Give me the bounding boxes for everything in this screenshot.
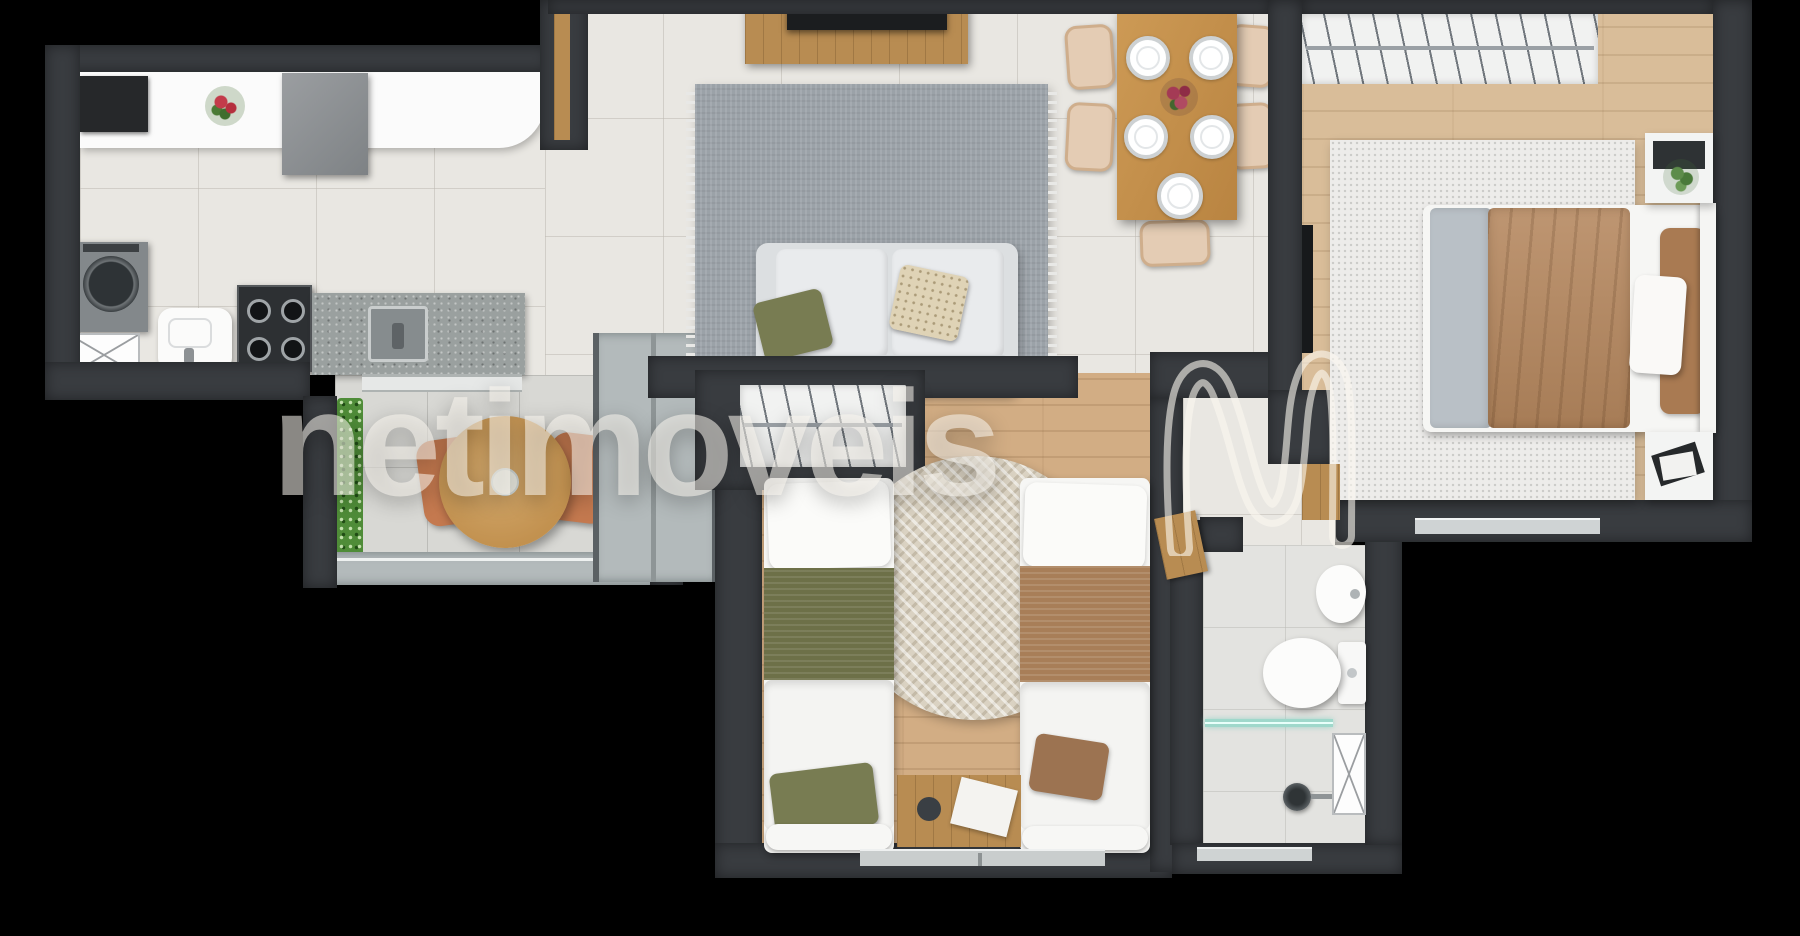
burner-1: [247, 299, 271, 323]
cup: [917, 797, 941, 821]
refrigerator: [282, 73, 368, 175]
master-duvet: [1488, 208, 1630, 428]
kids-floor-table: [897, 775, 1021, 847]
rug-fringe-right: [1048, 88, 1057, 356]
kids-right-accent-pillow: [1028, 733, 1110, 802]
wall-master-bottom: [1335, 500, 1752, 542]
watermark-text: netimoveis: [272, 368, 996, 518]
plate-3: [1124, 115, 1168, 159]
kitchen-door: [554, 12, 570, 140]
plate-4: [1190, 115, 1234, 159]
wall-living-top: [548, 0, 1270, 14]
wall-kitchen-top: [45, 45, 548, 72]
sofa-pillow-patterned: [888, 263, 970, 342]
washer-panel: [83, 244, 139, 252]
kids-right-footboard: [1022, 826, 1148, 850]
nightstand-bottom: [1645, 432, 1713, 500]
shower-drain-head: [1283, 783, 1311, 811]
dining-centerpiece-flowers: [1160, 78, 1198, 116]
master-foot-throw: [1430, 208, 1492, 428]
rug-fringe-left: [686, 88, 695, 356]
floorplan-canvas: netimoveis: [0, 0, 1800, 936]
magazine: [950, 777, 1018, 838]
master-window: [1415, 518, 1600, 534]
master-pillow-white: [1629, 274, 1688, 375]
tub-basin: [168, 318, 212, 348]
bathroom-window: [1197, 847, 1312, 861]
washing-machine: [75, 242, 148, 332]
burner-3: [247, 337, 271, 361]
watermark-logo-n-icon: [1146, 296, 1376, 556]
wardrobe-rod: [1306, 46, 1594, 50]
kids-left-footboard: [766, 824, 892, 850]
burner-4: [281, 337, 305, 361]
toilet-tank: [1338, 642, 1366, 704]
plate-2: [1189, 36, 1233, 80]
countertop-appliance: [80, 76, 148, 132]
nightstand-plant: [1663, 159, 1699, 195]
sink-faucet: [1350, 589, 1360, 599]
toilet-bowl: [1263, 638, 1341, 708]
kitchen-faucet: [392, 323, 404, 349]
shower-glass-partition: [1205, 719, 1333, 727]
kids-right-blanket: [1020, 566, 1150, 682]
kids-left-blanket: [764, 568, 894, 680]
nightstand-top: [1645, 133, 1713, 203]
wall-master-top: [1302, 0, 1713, 14]
wall-master-right: [1713, 0, 1752, 542]
kids-right-pillow: [1023, 482, 1148, 570]
glass-highlight: [1205, 722, 1333, 724]
wall-kitchen-left: [45, 45, 80, 400]
wall-laundry-bottom: [45, 362, 310, 400]
kids-window-mullion: [978, 853, 982, 866]
shower-shelf: [1332, 733, 1366, 815]
washer-lid: [83, 256, 139, 312]
kids-window: [860, 849, 1105, 866]
flower-vase: [205, 86, 245, 126]
master-wardrobe: [1302, 14, 1598, 84]
wall-kitchen-divider: [540, 0, 588, 150]
plate-5: [1157, 173, 1203, 219]
dining-chair-left-1: [1064, 23, 1116, 90]
dining-chair-left-2: [1064, 102, 1115, 172]
wall-bath-right: [1365, 518, 1402, 845]
toilet-flush-button: [1347, 668, 1357, 678]
plate-1: [1126, 36, 1170, 80]
master-headboard: [1700, 203, 1716, 433]
dining-table: [1117, 10, 1237, 220]
dining-chair-bottom: [1139, 219, 1211, 267]
burner-2: [281, 299, 305, 323]
